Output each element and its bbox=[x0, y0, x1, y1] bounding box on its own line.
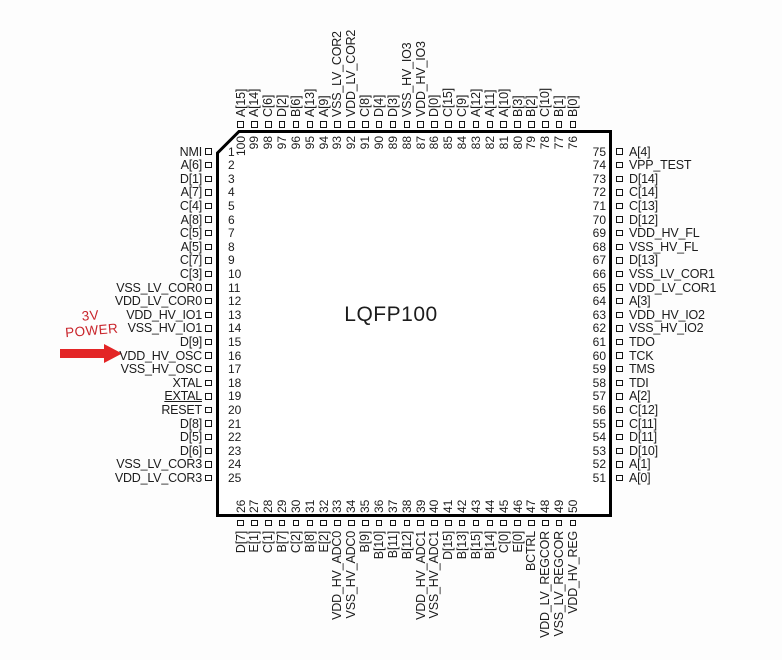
pin-66-pad-icon bbox=[616, 271, 623, 278]
pin-33-pad-icon bbox=[334, 520, 341, 527]
pins-layer: NMI1A[6]2D[1]3A[7]4C[4]5A[8]6C[5]7A[5]8C… bbox=[0, 0, 782, 660]
pin-23-label: D[6] bbox=[10, 445, 202, 458]
pin-78-pad-icon bbox=[542, 121, 549, 128]
pin-80-pad-icon bbox=[514, 121, 521, 128]
pin-86-pad-icon bbox=[431, 121, 438, 128]
pin-6-number: 6 bbox=[228, 214, 268, 227]
pin-74-label: VPP_TEST bbox=[629, 159, 779, 172]
pin-29-label: B[7] bbox=[276, 531, 289, 660]
pin-97-number: 97 bbox=[276, 136, 289, 166]
pin-60-number: 60 bbox=[566, 350, 606, 363]
pin-66-number: 66 bbox=[566, 268, 606, 281]
pin-2-label: A[6] bbox=[10, 159, 202, 172]
pin-8-number: 8 bbox=[228, 241, 268, 254]
pin-79-number: 79 bbox=[525, 136, 538, 166]
pin-30-label: C[2] bbox=[290, 531, 303, 660]
pin-92-number: 92 bbox=[345, 136, 358, 166]
pin-69-pad-icon bbox=[616, 230, 623, 237]
pin-57-label: A[2] bbox=[629, 390, 779, 403]
pin-36-pad-icon bbox=[376, 520, 383, 527]
pin-9-pad-icon bbox=[205, 257, 212, 264]
pin-61-label: TDO bbox=[629, 336, 779, 349]
pin-49-number: 49 bbox=[553, 483, 566, 513]
pin-40-label: VSS_HV_ADC1 bbox=[428, 531, 441, 660]
pin-85-pad-icon bbox=[445, 121, 452, 128]
pin-67-number: 67 bbox=[566, 254, 606, 267]
pin-50-label: VDD_HV_REG bbox=[567, 531, 580, 660]
pin-78-label: C[10] bbox=[539, 0, 552, 117]
pin-4-label: A[7] bbox=[10, 186, 202, 199]
pin-22-number: 22 bbox=[228, 431, 268, 444]
pin-79-pad-icon bbox=[528, 121, 535, 128]
pin-57-number: 57 bbox=[566, 390, 606, 403]
pin-76-label: B[0] bbox=[567, 0, 580, 117]
pin-65-number: 65 bbox=[566, 282, 606, 295]
pin-45-number: 45 bbox=[498, 483, 511, 513]
pin-51-label: A[0] bbox=[629, 472, 779, 485]
pin-16-pad-icon bbox=[205, 352, 212, 359]
pin-71-number: 71 bbox=[566, 200, 606, 213]
pin-36-label: B[10] bbox=[373, 531, 386, 660]
pin-43-pad-icon bbox=[473, 520, 480, 527]
pin-52-number: 52 bbox=[566, 458, 606, 471]
pin-15-label: D[9] bbox=[10, 336, 202, 349]
pin-55-number: 55 bbox=[566, 418, 606, 431]
pin-37-label: B[11] bbox=[387, 531, 400, 660]
pin-55-label: C[11] bbox=[629, 418, 779, 431]
pin-41-label: D[15] bbox=[442, 531, 455, 660]
pin-15-number: 15 bbox=[228, 336, 268, 349]
pin-29-number: 29 bbox=[276, 483, 289, 513]
pin-20-pad-icon bbox=[205, 407, 212, 414]
pin-7-number: 7 bbox=[228, 227, 268, 240]
pin-48-pad-icon bbox=[542, 520, 549, 527]
pin-59-number: 59 bbox=[566, 363, 606, 376]
pin-64-pad-icon bbox=[616, 298, 623, 305]
pin-33-label: VDD_HV_ADC0 bbox=[331, 531, 344, 660]
pin-87-pad-icon bbox=[417, 121, 424, 128]
pin-24-number: 24 bbox=[228, 458, 268, 471]
pin-14-label: VSS_HV_IO1 bbox=[10, 322, 202, 335]
pin-63-label: VDD_HV_IO2 bbox=[629, 309, 779, 322]
pin-86-label: D[0] bbox=[428, 0, 441, 117]
pin-51-pad-icon bbox=[616, 475, 623, 482]
pin-87-number: 87 bbox=[415, 136, 428, 166]
pin-47-label: BCTRL bbox=[525, 531, 538, 660]
pin-25-label: VDD_LV_COR3 bbox=[10, 472, 202, 485]
pin-41-number: 41 bbox=[442, 483, 455, 513]
pin-27-number: 27 bbox=[248, 483, 261, 513]
pin-97-label: D[2] bbox=[276, 0, 289, 117]
pin-12-number: 12 bbox=[228, 295, 268, 308]
pin-87-label: VDD_HV_IO3 bbox=[415, 0, 428, 117]
pin-16-label: VDD_HV_OSC bbox=[10, 350, 202, 363]
pin-15-pad-icon bbox=[205, 339, 212, 346]
pin-27-pad-icon bbox=[251, 520, 258, 527]
pin-23-pad-icon bbox=[205, 448, 212, 455]
pin-97-pad-icon bbox=[279, 121, 286, 128]
pin-1-pad-icon bbox=[205, 148, 212, 155]
pin-42-number: 42 bbox=[456, 483, 469, 513]
pin-56-label: C[12] bbox=[629, 404, 779, 417]
pin-30-number: 30 bbox=[290, 483, 303, 513]
pin-85-number: 85 bbox=[442, 136, 455, 166]
pin-58-label: TDI bbox=[629, 377, 779, 390]
pin-42-pad-icon bbox=[459, 520, 466, 527]
pin-10-number: 10 bbox=[228, 268, 268, 281]
pin-94-number: 94 bbox=[318, 136, 331, 166]
pin-95-label: A[13] bbox=[304, 0, 317, 117]
pin-77-label: B[1] bbox=[553, 0, 566, 117]
pin-57-pad-icon bbox=[616, 393, 623, 400]
pin-91-number: 91 bbox=[359, 136, 372, 166]
pin-30-pad-icon bbox=[293, 520, 300, 527]
pin-64-label: A[3] bbox=[629, 295, 779, 308]
pin-81-number: 81 bbox=[498, 136, 511, 166]
pin-63-pad-icon bbox=[616, 312, 623, 319]
pin-93-label: VSS_LV_COR2 bbox=[331, 0, 344, 117]
pin-5-pad-icon bbox=[205, 203, 212, 210]
pin-96-number: 96 bbox=[290, 136, 303, 166]
pin-90-number: 90 bbox=[373, 136, 386, 166]
pin-3-label: D[1] bbox=[10, 173, 202, 186]
pin-53-number: 53 bbox=[566, 445, 606, 458]
pin-72-pad-icon bbox=[616, 189, 623, 196]
pin-83-label: A[12] bbox=[470, 0, 483, 117]
pin-24-label: VSS_LV_COR3 bbox=[10, 458, 202, 471]
pin-72-label: C[14] bbox=[629, 186, 779, 199]
pin-9-number: 9 bbox=[228, 254, 268, 267]
pin-10-pad-icon bbox=[205, 271, 212, 278]
pin-73-pad-icon bbox=[616, 176, 623, 183]
pin-12-label: VDD_LV_COR0 bbox=[10, 295, 202, 308]
pin-65-label: VDD_LV_COR1 bbox=[629, 282, 779, 295]
pin-17-number: 17 bbox=[228, 363, 268, 376]
pin-54-number: 54 bbox=[566, 431, 606, 444]
pin-55-pad-icon bbox=[616, 420, 623, 427]
pin-98-number: 98 bbox=[262, 136, 275, 166]
pin-54-pad-icon bbox=[616, 434, 623, 441]
pin-28-label: C[1] bbox=[262, 531, 275, 660]
pin-61-pad-icon bbox=[616, 339, 623, 346]
pin-98-pad-icon bbox=[265, 121, 272, 128]
pin-76-pad-icon bbox=[570, 121, 577, 128]
pin-14-number: 14 bbox=[228, 322, 268, 335]
pin-19-pad-icon bbox=[205, 393, 212, 400]
pin-34-number: 34 bbox=[345, 483, 358, 513]
pin-44-number: 44 bbox=[484, 483, 497, 513]
pin-72-number: 72 bbox=[566, 186, 606, 199]
pin-68-label: VSS_HV_FL bbox=[629, 241, 779, 254]
pin-62-number: 62 bbox=[566, 322, 606, 335]
pin-11-pad-icon bbox=[205, 284, 212, 291]
pin-56-number: 56 bbox=[566, 404, 606, 417]
pin-71-pad-icon bbox=[616, 203, 623, 210]
pin-89-pad-icon bbox=[390, 121, 397, 128]
pin-45-pad-icon bbox=[500, 520, 507, 527]
pin-83-number: 83 bbox=[470, 136, 483, 166]
pin-52-pad-icon bbox=[616, 461, 623, 468]
pin-45-label: C[0] bbox=[498, 531, 511, 660]
pin-60-pad-icon bbox=[616, 352, 623, 359]
pin-27-label: E[1] bbox=[248, 531, 261, 660]
pin-93-pad-icon bbox=[334, 121, 341, 128]
pin-62-pad-icon bbox=[616, 325, 623, 332]
pin-58-pad-icon bbox=[616, 380, 623, 387]
pin-46-number: 46 bbox=[512, 483, 525, 513]
pin-41-pad-icon bbox=[445, 520, 452, 527]
pin-32-label: E[2] bbox=[318, 531, 331, 660]
pin-6-label: A[8] bbox=[10, 214, 202, 227]
pin-89-label: D[3] bbox=[387, 0, 400, 117]
pin-26-pad-icon bbox=[237, 520, 244, 527]
pin-90-label: D[4] bbox=[373, 0, 386, 117]
pin-81-label: A[10] bbox=[498, 0, 511, 117]
pin-88-pad-icon bbox=[404, 121, 411, 128]
pin-48-number: 48 bbox=[539, 483, 552, 513]
pin-92-label: VDD_LV_COR2 bbox=[345, 0, 358, 117]
pin-13-label: VDD_HV_IO1 bbox=[10, 309, 202, 322]
pin-29-pad-icon bbox=[279, 520, 286, 527]
pin-31-number: 31 bbox=[304, 483, 317, 513]
pin-21-label: D[8] bbox=[10, 418, 202, 431]
pin-11-number: 11 bbox=[228, 282, 268, 295]
pin-50-number: 50 bbox=[567, 483, 580, 513]
pin-73-number: 73 bbox=[566, 173, 606, 186]
pin-65-pad-icon bbox=[616, 284, 623, 291]
pin-73-label: D[14] bbox=[629, 173, 779, 186]
pin-39-number: 39 bbox=[415, 483, 428, 513]
pin-37-pad-icon bbox=[390, 520, 397, 527]
pin-84-pad-icon bbox=[459, 121, 466, 128]
pin-95-number: 95 bbox=[304, 136, 317, 166]
pin-34-label: VSS_HV_ADC0 bbox=[345, 531, 358, 660]
pin-100-pad-icon bbox=[237, 121, 244, 128]
pin-98-label: C[6] bbox=[262, 0, 275, 117]
pin-10-label: C[3] bbox=[10, 268, 202, 281]
pin-62-label: VSS_HV_IO2 bbox=[629, 322, 779, 335]
pin-85-label: C[15] bbox=[442, 0, 455, 117]
pin-34-pad-icon bbox=[348, 520, 355, 527]
pin-18-pad-icon bbox=[205, 380, 212, 387]
pin-59-label: TMS bbox=[629, 363, 779, 376]
pin-53-label: D[10] bbox=[629, 445, 779, 458]
pin-68-pad-icon bbox=[616, 244, 623, 251]
pin-26-label: D[7] bbox=[235, 531, 248, 660]
pin-69-label: VDD_HV_FL bbox=[629, 227, 779, 240]
pin-67-pad-icon bbox=[616, 257, 623, 264]
pin-56-pad-icon bbox=[616, 407, 623, 414]
pin-31-pad-icon bbox=[307, 520, 314, 527]
pin-24-pad-icon bbox=[205, 461, 212, 468]
pin-33-number: 33 bbox=[331, 483, 344, 513]
pin-22-pad-icon bbox=[205, 434, 212, 441]
pin-40-number: 40 bbox=[428, 483, 441, 513]
pin-35-number: 35 bbox=[359, 483, 372, 513]
pin-81-pad-icon bbox=[500, 121, 507, 128]
pin-18-label: XTAL bbox=[10, 377, 202, 390]
pin-70-number: 70 bbox=[566, 214, 606, 227]
pin-82-pad-icon bbox=[487, 121, 494, 128]
pin-12-pad-icon bbox=[205, 298, 212, 305]
pin-49-pad-icon bbox=[556, 520, 563, 527]
pin-19-label: EXTAL bbox=[10, 390, 202, 403]
pin-13-pad-icon bbox=[205, 312, 212, 319]
pin-5-number: 5 bbox=[228, 200, 268, 213]
pin-35-pad-icon bbox=[362, 520, 369, 527]
pin-35-label: B[9] bbox=[359, 531, 372, 660]
pin-43-label: B[15] bbox=[470, 531, 483, 660]
pin-75-pad-icon bbox=[616, 148, 623, 155]
pin-82-number: 82 bbox=[484, 136, 497, 166]
pin-19-number: 19 bbox=[228, 390, 268, 403]
pin-3-pad-icon bbox=[205, 176, 212, 183]
pin-68-number: 68 bbox=[566, 241, 606, 254]
pin-46-pad-icon bbox=[514, 520, 521, 527]
pin-91-label: C[8] bbox=[359, 0, 372, 117]
pin-70-pad-icon bbox=[616, 216, 623, 223]
pin-28-pad-icon bbox=[265, 520, 272, 527]
pin-20-number: 20 bbox=[228, 404, 268, 417]
pin-96-pad-icon bbox=[293, 121, 300, 128]
pin-67-label: D[13] bbox=[629, 254, 779, 267]
pin-54-label: D[11] bbox=[629, 431, 779, 444]
pin-80-number: 80 bbox=[512, 136, 525, 166]
pin-100-number: 100 bbox=[235, 136, 248, 166]
pin-38-label: B[12] bbox=[401, 531, 414, 660]
pin-49-label: VSS_LV_REGCOR bbox=[553, 531, 566, 660]
pin-43-number: 43 bbox=[470, 483, 483, 513]
pin-64-number: 64 bbox=[566, 295, 606, 308]
pin-18-number: 18 bbox=[228, 377, 268, 390]
pin-75-label: A[4] bbox=[629, 146, 779, 159]
pin-7-pad-icon bbox=[205, 230, 212, 237]
pin-16-number: 16 bbox=[228, 350, 268, 363]
pin-66-label: VSS_LV_COR1 bbox=[629, 268, 779, 281]
pin-20-label: RESET bbox=[10, 404, 202, 417]
pin-11-label: VSS_LV_COR0 bbox=[10, 282, 202, 295]
pin-9-label: C[7] bbox=[10, 254, 202, 267]
pin-89-number: 89 bbox=[387, 136, 400, 166]
pin-84-label: C[9] bbox=[456, 0, 469, 117]
pin-36-number: 36 bbox=[373, 483, 386, 513]
pin-58-number: 58 bbox=[566, 377, 606, 390]
pin-48-label: VDD_LV_REGCOR bbox=[539, 531, 552, 660]
pin-37-number: 37 bbox=[387, 483, 400, 513]
pin-8-label: A[5] bbox=[10, 241, 202, 254]
pin-13-number: 13 bbox=[228, 309, 268, 322]
pin-77-pad-icon bbox=[556, 121, 563, 128]
pin-50-pad-icon bbox=[570, 520, 577, 527]
pin-93-number: 93 bbox=[331, 136, 344, 166]
pin-4-number: 4 bbox=[228, 186, 268, 199]
pin-76-number: 76 bbox=[567, 136, 580, 166]
pin-32-number: 32 bbox=[318, 483, 331, 513]
pin-22-label: D[5] bbox=[10, 431, 202, 444]
pin-70-label: D[12] bbox=[629, 214, 779, 227]
pin-14-pad-icon bbox=[205, 325, 212, 332]
pin-21-number: 21 bbox=[228, 418, 268, 431]
pin-17-label: VSS_HV_OSC bbox=[10, 363, 202, 376]
pin-100-label: A[15] bbox=[235, 0, 248, 117]
pin-88-number: 88 bbox=[401, 136, 414, 166]
pin-83-pad-icon bbox=[473, 121, 480, 128]
pin-90-pad-icon bbox=[376, 121, 383, 128]
pin-88-label: VSS_HV_IO3 bbox=[401, 0, 414, 117]
pin-80-label: B[3] bbox=[512, 0, 525, 117]
pin-7-label: C[5] bbox=[10, 227, 202, 240]
pin-82-label: A[11] bbox=[484, 0, 497, 117]
pin-32-pad-icon bbox=[320, 520, 327, 527]
pin-4-pad-icon bbox=[205, 189, 212, 196]
pin-91-pad-icon bbox=[362, 121, 369, 128]
pin-77-number: 77 bbox=[553, 136, 566, 166]
pin-78-number: 78 bbox=[539, 136, 552, 166]
pin-44-label: B[14] bbox=[484, 531, 497, 660]
pin-42-label: B[13] bbox=[456, 531, 469, 660]
pin-26-number: 26 bbox=[235, 483, 248, 513]
pin-63-number: 63 bbox=[566, 309, 606, 322]
pin-1-label: NMI bbox=[10, 146, 202, 159]
pin-21-pad-icon bbox=[205, 420, 212, 427]
pin-39-pad-icon bbox=[417, 520, 424, 527]
pin-86-number: 86 bbox=[428, 136, 441, 166]
pin-94-pad-icon bbox=[320, 121, 327, 128]
pin-38-number: 38 bbox=[401, 483, 414, 513]
pin-44-pad-icon bbox=[487, 520, 494, 527]
pin-23-number: 23 bbox=[228, 445, 268, 458]
pin-53-pad-icon bbox=[616, 448, 623, 455]
pin-59-pad-icon bbox=[616, 366, 623, 373]
pin-6-pad-icon bbox=[205, 216, 212, 223]
pin-39-label: VDD_HV_ADC1 bbox=[415, 531, 428, 660]
pin-71-label: C[13] bbox=[629, 200, 779, 213]
pin-8-pad-icon bbox=[205, 244, 212, 251]
pin-25-pad-icon bbox=[205, 475, 212, 482]
pin-99-number: 99 bbox=[248, 136, 261, 166]
pin-74-pad-icon bbox=[616, 162, 623, 169]
pin-60-label: TCK bbox=[629, 350, 779, 363]
pin-38-pad-icon bbox=[404, 520, 411, 527]
pin-40-pad-icon bbox=[431, 520, 438, 527]
pin-95-pad-icon bbox=[307, 121, 314, 128]
pin-47-pad-icon bbox=[528, 520, 535, 527]
pin-17-pad-icon bbox=[205, 366, 212, 373]
pin-92-pad-icon bbox=[348, 121, 355, 128]
pin-61-number: 61 bbox=[566, 336, 606, 349]
lqfp100-pinout-diagram: LQFP100 3V POWER NMI1A[6]2D[1]3A[7]4C[4]… bbox=[0, 0, 782, 660]
pin-5-label: C[4] bbox=[10, 200, 202, 213]
pin-2-pad-icon bbox=[205, 162, 212, 169]
pin-46-label: E[0] bbox=[512, 531, 525, 660]
pin-99-pad-icon bbox=[251, 121, 258, 128]
pin-28-number: 28 bbox=[262, 483, 275, 513]
pin-96-label: B[6] bbox=[290, 0, 303, 117]
pin-3-number: 3 bbox=[228, 173, 268, 186]
pin-99-label: A[14] bbox=[248, 0, 261, 117]
pin-52-label: A[1] bbox=[629, 458, 779, 471]
pin-84-number: 84 bbox=[456, 136, 469, 166]
pin-47-number: 47 bbox=[525, 483, 538, 513]
pin-79-label: B[2] bbox=[525, 0, 538, 117]
pin-69-number: 69 bbox=[566, 227, 606, 240]
pin-94-label: A[9] bbox=[318, 0, 331, 117]
pin-31-label: B[8] bbox=[304, 531, 317, 660]
